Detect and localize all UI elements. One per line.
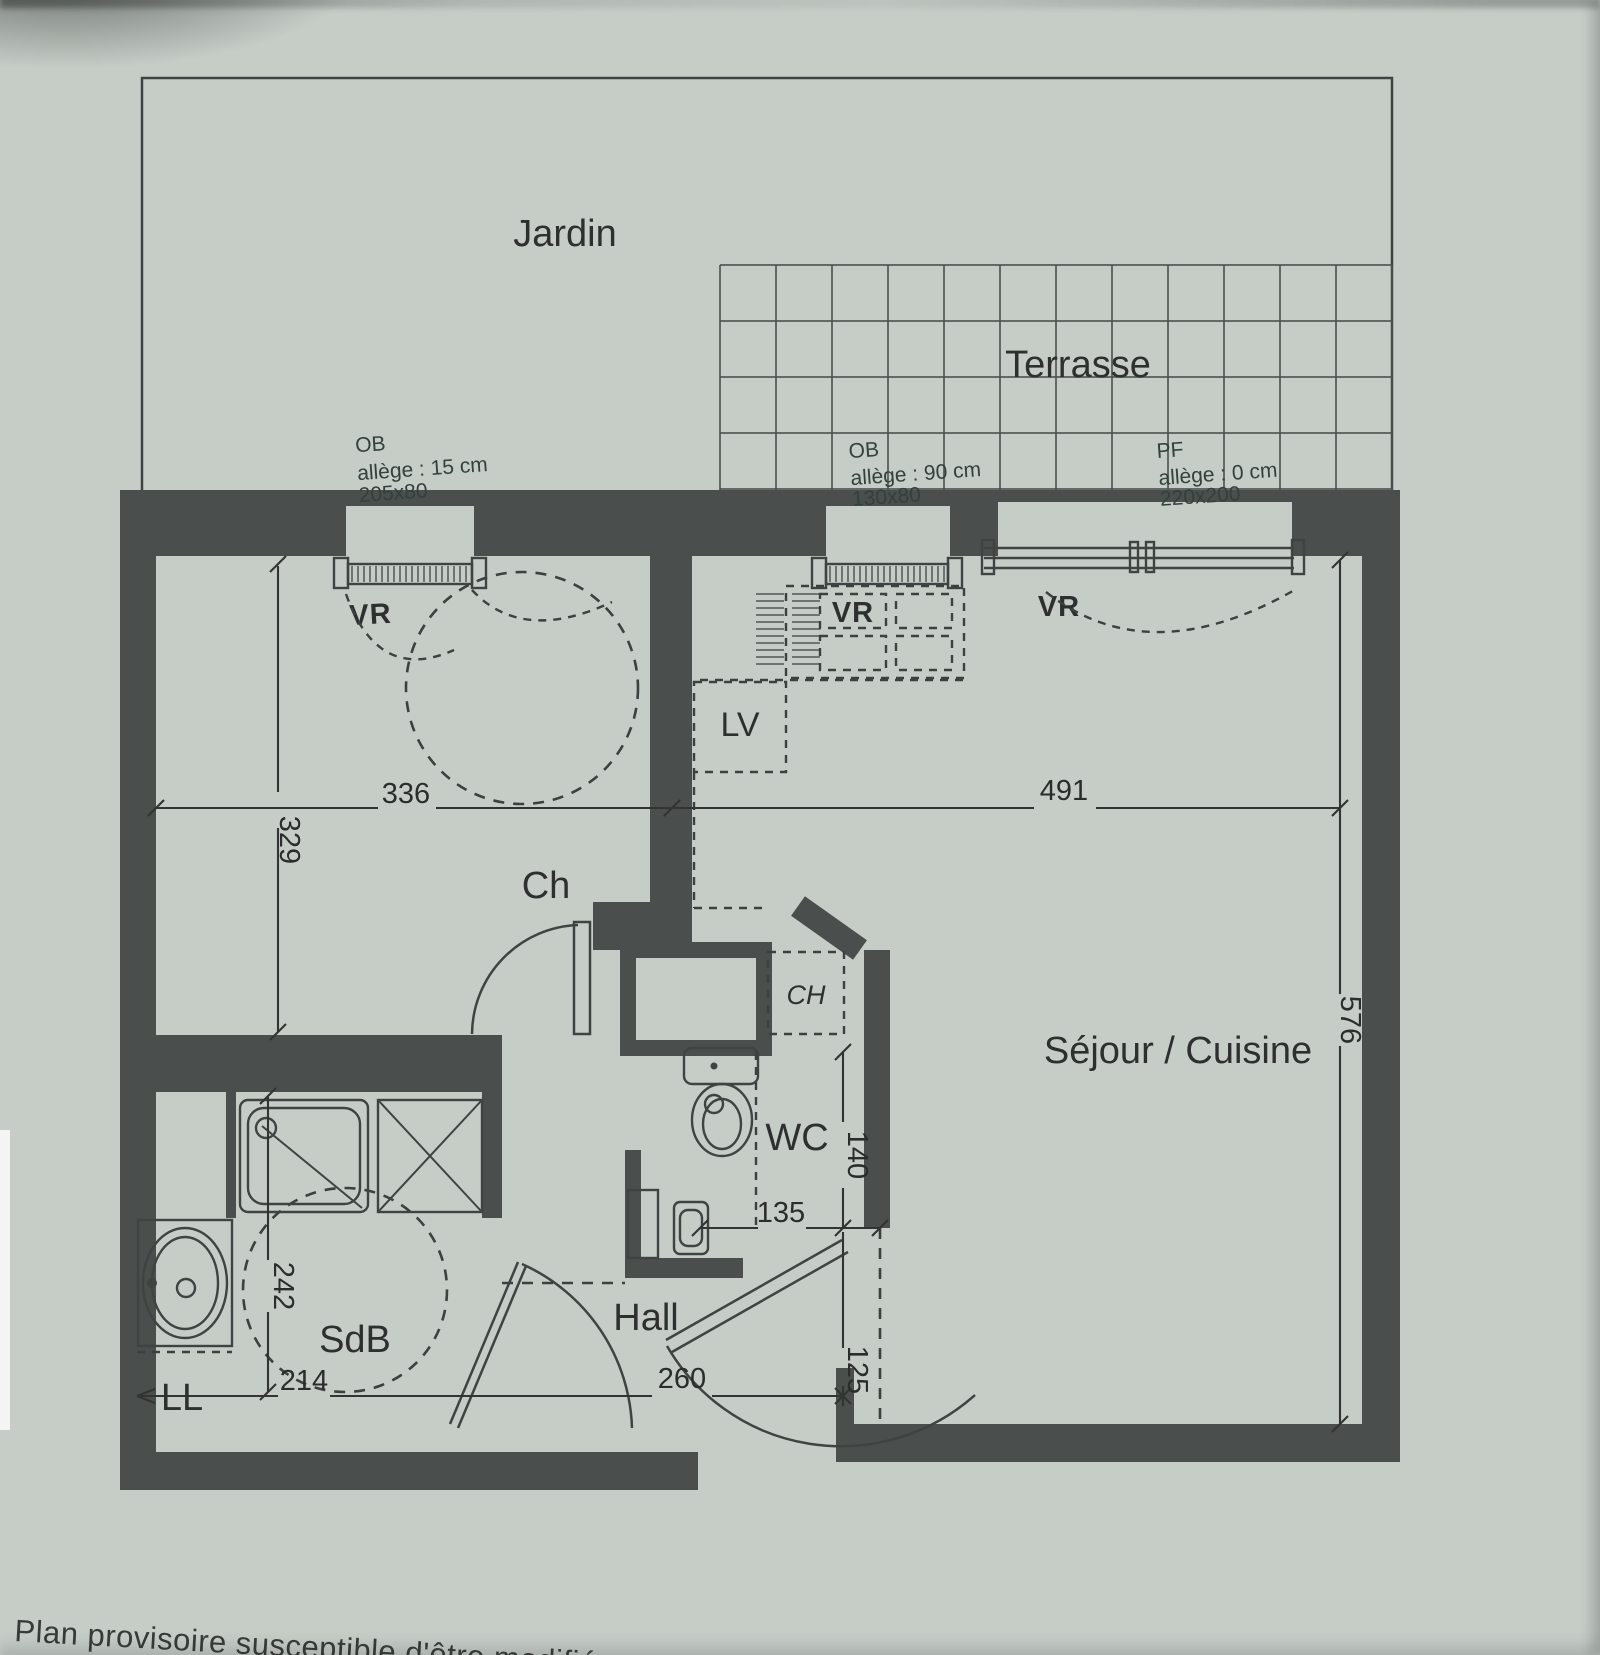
scan-smudge-top <box>0 0 1600 8</box>
dim-sejour-width: 491 <box>1040 775 1088 807</box>
bedroom-label: Ch <box>522 865 571 907</box>
bathroom-door <box>450 1262 632 1428</box>
dim-wc-width: 135 <box>757 1197 805 1229</box>
jardin-label: Jardin <box>513 213 617 255</box>
water-heater-label: CH <box>787 980 826 1010</box>
dim-sejour-depth: 576 <box>1334 996 1366 1044</box>
window-left-type: OB <box>354 432 386 457</box>
shutter-arcs <box>346 588 1298 659</box>
window-left-size: 205x80 <box>358 479 428 507</box>
dim-ch-depth: 329 <box>273 816 305 864</box>
dim-hall-width: 260 <box>658 1363 706 1395</box>
window-middle <box>812 558 962 588</box>
window-middle-type: OB <box>848 438 880 463</box>
window-right-type: PF <box>1156 438 1184 463</box>
sejour-label: Séjour / Cuisine <box>1044 1030 1312 1072</box>
dim-sdb-width: 214 <box>280 1365 328 1397</box>
dim-entry-width: 125 <box>841 1346 873 1394</box>
lv-label: LV <box>720 706 759 744</box>
floor-plan-scan: Jardin Terrasse OB allège : 15 <box>0 0 1600 1655</box>
scan-edge-sliver <box>0 1130 10 1430</box>
dim-wc-depth: 140 <box>841 1131 873 1179</box>
toilet <box>684 1048 758 1156</box>
shower <box>240 1100 368 1212</box>
vr-right-label: VR <box>1038 591 1080 623</box>
window-middle-size: 130x80 <box>851 483 921 511</box>
dim-sdb-depth: 242 <box>267 1262 299 1310</box>
window-left <box>334 558 486 588</box>
vr-middle-label: VR <box>832 597 874 629</box>
floor-plan-drawing: Jardin Terrasse OB allège : 15 <box>0 0 1600 1655</box>
scan-smudge-topleft <box>0 0 360 70</box>
hall-label: Hall <box>613 1297 678 1339</box>
scan-smudge-right <box>1584 0 1600 1655</box>
dim-ch-width: 336 <box>382 778 430 810</box>
sdb-label: SdB <box>319 1319 391 1361</box>
scan-smudge-bottom <box>0 1637 1600 1655</box>
terrasse-label: Terrasse <box>1005 344 1151 386</box>
vanity-unit <box>378 1100 482 1212</box>
bedroom-door <box>472 922 590 1034</box>
ll-label: LL <box>161 1377 203 1419</box>
wc-label: WC <box>765 1117 828 1159</box>
